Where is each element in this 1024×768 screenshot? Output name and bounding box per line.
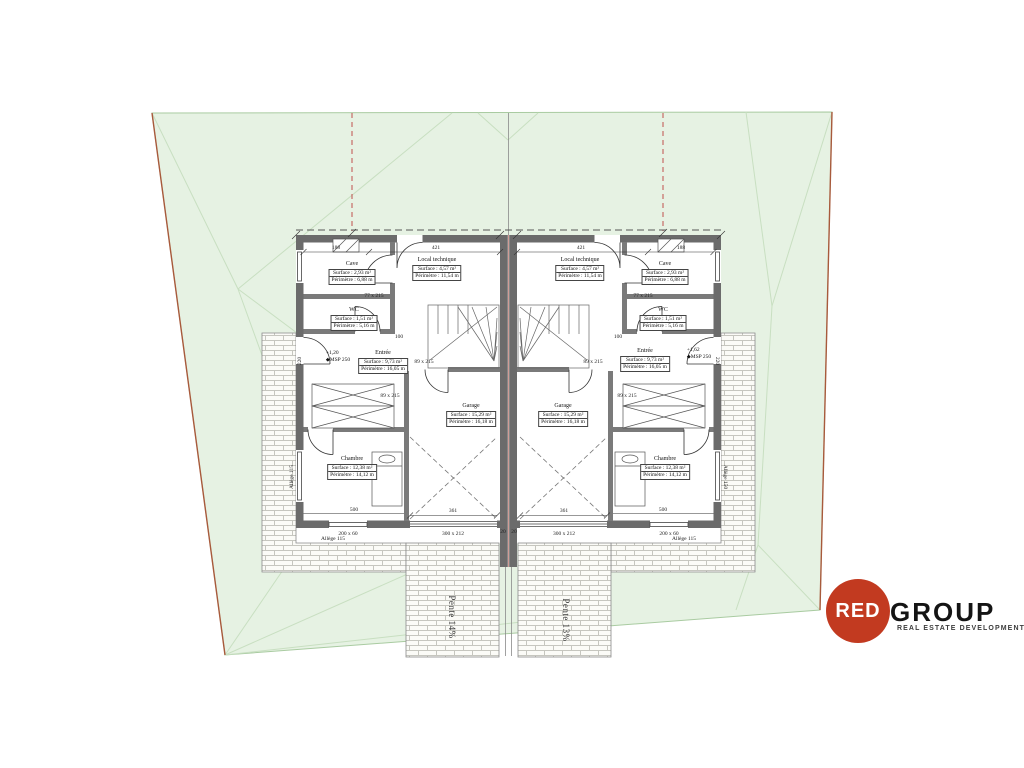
room-name: Local technique xyxy=(555,257,604,264)
room-surface: Surface : 9,73 m² xyxy=(621,357,669,364)
room-label-wc-left: WC Surface : 1,51 m² Périmètre : 5,16 m xyxy=(331,307,378,331)
level-marker-left: +1,20 ◆MSP 250 xyxy=(326,350,350,364)
dim-361-left: 361 xyxy=(449,508,457,514)
room-name: Chambre xyxy=(327,456,377,463)
dim-door77-left: 77 x 215 xyxy=(364,293,383,299)
logo-tagline: REAL ESTATE DEVELOPMENT xyxy=(897,625,1024,632)
room-name: Cave xyxy=(329,261,376,268)
room-label-local-right: Local technique Surface : 4,57 m² Périmè… xyxy=(555,257,604,281)
dim-door89-right-a: 89 x 215 xyxy=(583,359,602,365)
dim-door77-right: 77 x 215 xyxy=(633,293,652,299)
dim-door89-right-b: 89 x 215 xyxy=(617,393,636,399)
dim-20-left: 20 xyxy=(500,529,506,535)
dim-188-left: 188 xyxy=(332,245,340,251)
dim-421-left: 421 xyxy=(432,245,440,251)
room-label-garage-right: Garage Surface : 15,29 m² Périmètre : 16… xyxy=(538,403,588,427)
dim-allege115-bottom-left: Allège 115 xyxy=(321,536,345,542)
room-surface: Surface : 2,93 m² xyxy=(330,270,375,277)
room-perimeter: Périmètre : 11,54 m xyxy=(556,272,603,280)
room-perimeter: Périmètre : 16,05 m xyxy=(621,363,669,371)
room-perimeter: Périmètre : 5,16 m xyxy=(332,322,377,330)
logo-red-circle: RED xyxy=(826,579,890,643)
room-surface: Surface : 12,38 m² xyxy=(641,465,689,472)
dim-220-left: 220 xyxy=(297,357,303,365)
room-label-local-left: Local technique Surface : 4,57 m² Périmè… xyxy=(412,257,461,281)
dim-220-right: 220 xyxy=(714,357,720,365)
room-perimeter: Périmètre : 14,12 m xyxy=(641,471,689,479)
room-label-entree-right: Entrée Surface : 9,73 m² Périmètre : 16,… xyxy=(620,348,670,372)
level-value: +1,62 xyxy=(687,347,711,354)
level-ref: MSP 250 xyxy=(691,354,711,360)
dim-door89-left-a: 89 x 215 xyxy=(414,359,433,365)
room-perimeter: Périmètre : 16,18 m xyxy=(539,418,587,426)
dim-garage-door-right: 300 x 212 xyxy=(553,531,575,537)
red-group-logo: RED GROUP REAL ESTATE DEVELOPMENT xyxy=(820,575,1015,655)
room-surface: Surface : 1,51 m² xyxy=(641,316,686,323)
dim-allege150-side-right: Allège 150 xyxy=(722,465,728,489)
dim-allege115-bottom-right: Allège 115 xyxy=(672,536,696,542)
level-ref: MSP 250 xyxy=(330,357,350,363)
dim-100-left: 100 xyxy=(395,334,403,340)
room-surface: Surface : 9,73 m² xyxy=(359,359,407,366)
room-label-cave-left: Cave Surface : 2,93 m² Périmètre : 6,88 … xyxy=(329,261,376,285)
room-perimeter: Périmètre : 16,05 m xyxy=(359,365,407,373)
room-label-cave-right: Cave Surface : 2,93 m² Périmètre : 6,88 … xyxy=(642,261,689,285)
floor-plan-page: Cave Surface : 2,93 m² Périmètre : 6,88 … xyxy=(0,0,1024,768)
room-label-wc-right: WC Surface : 1,51 m² Périmètre : 5,16 m xyxy=(640,307,687,331)
level-value: +1,20 xyxy=(326,350,350,357)
room-name: Cave xyxy=(642,261,689,268)
room-name: Garage xyxy=(538,403,588,410)
room-name: Entrée xyxy=(620,348,670,355)
room-label-entree-left: Entrée Surface : 9,73 m² Périmètre : 16,… xyxy=(358,350,408,374)
dim-door89-left-b: 89 x 215 xyxy=(380,393,399,399)
room-label-chambre-right: Chambre Surface : 12,38 m² Périmètre : 1… xyxy=(640,456,690,480)
dim-500-left: 500 xyxy=(350,507,358,513)
room-name: WC xyxy=(331,307,378,314)
slope-label-right: Pente 13% xyxy=(561,598,571,641)
room-perimeter: Périmètre : 11,54 m xyxy=(413,272,460,280)
room-perimeter: Périmètre : 6,88 m xyxy=(643,276,688,284)
dim-20-right: 20 xyxy=(511,529,517,535)
room-name: Garage xyxy=(446,403,496,410)
logo-red-text: RED xyxy=(835,600,880,623)
room-surface: Surface : 4,57 m² xyxy=(556,266,603,273)
room-perimeter: Périmètre : 5,16 m xyxy=(641,322,686,330)
slope-label-left: Pente 14% xyxy=(447,595,457,638)
room-surface: Surface : 2,93 m² xyxy=(643,270,688,277)
room-name: Local technique xyxy=(412,257,461,264)
room-perimeter: Périmètre : 16,18 m xyxy=(447,418,495,426)
room-name: WC xyxy=(640,307,687,314)
room-label-chambre-left: Chambre Surface : 12,38 m² Périmètre : 1… xyxy=(327,456,377,480)
dim-361-right: 361 xyxy=(560,508,568,514)
room-surface: Surface : 4,57 m² xyxy=(413,266,460,273)
level-marker-right: +1,62 ◆MSP 250 xyxy=(687,347,711,361)
room-perimeter: Périmètre : 14,12 m xyxy=(328,471,376,479)
room-surface: Surface : 1,51 m² xyxy=(332,316,377,323)
dim-100-right: 100 xyxy=(614,334,622,340)
room-surface: Surface : 15,29 m² xyxy=(539,412,587,419)
room-name: Entrée xyxy=(358,350,408,357)
dim-allege115-side-left: Allège 115 xyxy=(289,465,295,489)
dim-188-right: 188 xyxy=(677,245,685,251)
dim-garage-door-left: 300 x 212 xyxy=(442,531,464,537)
room-label-garage-left: Garage Surface : 15,29 m² Périmètre : 16… xyxy=(446,403,496,427)
room-surface: Surface : 15,29 m² xyxy=(447,412,495,419)
room-surface: Surface : 12,38 m² xyxy=(328,465,376,472)
room-perimeter: Périmètre : 6,88 m xyxy=(330,276,375,284)
dim-421-right: 421 xyxy=(577,245,585,251)
logo-group-text: GROUP xyxy=(890,597,995,628)
dim-500-right: 500 xyxy=(659,507,667,513)
room-name: Chambre xyxy=(640,456,690,463)
